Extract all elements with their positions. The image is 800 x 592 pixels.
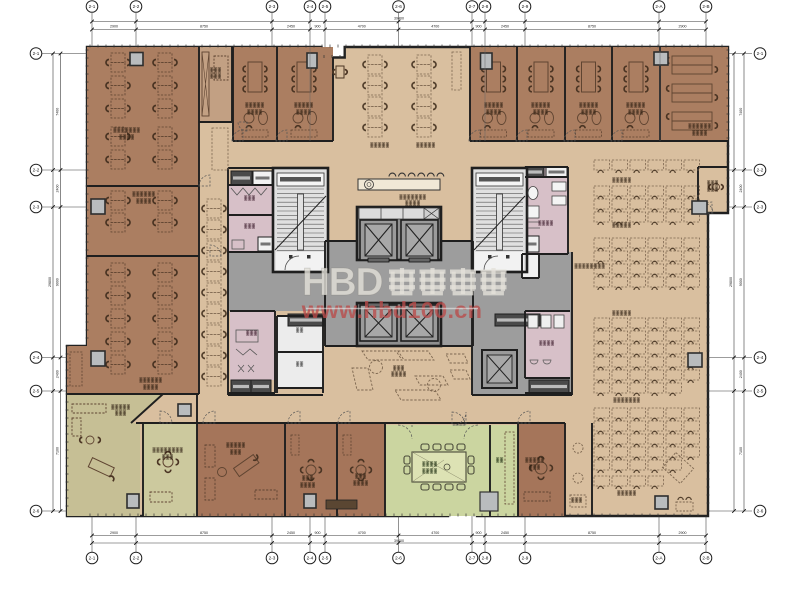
svg-text:2-1: 2-1 xyxy=(33,51,40,56)
svg-text:2-A: 2-A xyxy=(655,4,663,9)
svg-text:29800: 29800 xyxy=(729,277,733,287)
svg-text:2-2: 2-2 xyxy=(133,4,140,9)
svg-text:9000: 9000 xyxy=(56,278,60,286)
svg-text:2400: 2400 xyxy=(56,185,60,193)
svg-text:2-1: 2-1 xyxy=(757,51,764,56)
svg-text:9000: 9000 xyxy=(739,278,743,286)
svg-text:2400: 2400 xyxy=(56,370,60,378)
svg-text:2-4: 2-4 xyxy=(33,355,40,360)
svg-text:2-B: 2-B xyxy=(702,4,709,9)
svg-text:8750: 8750 xyxy=(200,531,208,535)
svg-text:2-3: 2-3 xyxy=(33,205,40,210)
svg-text:2900: 2900 xyxy=(110,25,118,29)
svg-text:8750: 8750 xyxy=(200,25,208,29)
svg-text:4700: 4700 xyxy=(358,531,366,535)
svg-text:2-B: 2-B xyxy=(702,556,709,561)
svg-text:www.hbd100.cn: www.hbd100.cn xyxy=(301,297,483,323)
svg-text:2450: 2450 xyxy=(287,531,295,535)
svg-text:2-4: 2-4 xyxy=(307,556,314,561)
svg-text:900: 900 xyxy=(476,531,482,535)
svg-text:900: 900 xyxy=(315,25,321,29)
svg-text:2-1: 2-1 xyxy=(89,4,96,9)
svg-text:2-9: 2-9 xyxy=(522,4,529,9)
svg-text:2900: 2900 xyxy=(110,531,118,535)
svg-text:29800: 29800 xyxy=(48,277,52,287)
svg-text:2400: 2400 xyxy=(739,185,743,193)
svg-text:2-9: 2-9 xyxy=(522,556,529,561)
svg-text:2-5: 2-5 xyxy=(322,556,329,561)
svg-text:39400: 39400 xyxy=(394,17,404,21)
svg-text:2450: 2450 xyxy=(287,25,295,29)
svg-text:2-5: 2-5 xyxy=(33,389,40,394)
svg-text:7400: 7400 xyxy=(739,108,743,116)
svg-text:2-2: 2-2 xyxy=(133,556,140,561)
svg-text:2-2: 2-2 xyxy=(757,168,764,173)
svg-text:2-3: 2-3 xyxy=(757,205,764,210)
svg-text:4700: 4700 xyxy=(431,25,439,29)
svg-text:7100: 7100 xyxy=(739,447,743,455)
svg-text:900: 900 xyxy=(315,531,321,535)
svg-text:2-A: 2-A xyxy=(655,556,663,561)
svg-text:2-7: 2-7 xyxy=(469,4,476,9)
svg-text:2-6: 2-6 xyxy=(395,556,402,561)
svg-text:2900: 2900 xyxy=(679,531,687,535)
svg-text:2-1: 2-1 xyxy=(89,556,96,561)
svg-text:2-3: 2-3 xyxy=(269,556,276,561)
svg-text:2-6: 2-6 xyxy=(33,509,40,514)
svg-text:7400: 7400 xyxy=(56,108,60,116)
svg-text:2-6: 2-6 xyxy=(395,4,402,9)
svg-text:8750: 8750 xyxy=(588,531,596,535)
svg-text:2-6: 2-6 xyxy=(757,509,764,514)
svg-text:2-2: 2-2 xyxy=(33,168,40,173)
svg-text:2-8: 2-8 xyxy=(482,4,489,9)
svg-text:8750: 8750 xyxy=(588,25,596,29)
svg-text:2-4: 2-4 xyxy=(757,355,764,360)
svg-text:2900: 2900 xyxy=(679,25,687,29)
svg-text:2450: 2450 xyxy=(501,531,509,535)
svg-text:2-4: 2-4 xyxy=(307,4,314,9)
svg-text:4700: 4700 xyxy=(358,25,366,29)
svg-text:7100: 7100 xyxy=(56,447,60,455)
svg-text:2400: 2400 xyxy=(739,370,743,378)
svg-text:2450: 2450 xyxy=(501,25,509,29)
svg-text:2-3: 2-3 xyxy=(269,4,276,9)
svg-text:2-5: 2-5 xyxy=(322,4,329,9)
svg-text:4700: 4700 xyxy=(431,531,439,535)
svg-text:2-5: 2-5 xyxy=(757,389,764,394)
svg-text:39400: 39400 xyxy=(394,539,404,543)
svg-text:900: 900 xyxy=(476,25,482,29)
svg-text:2-7: 2-7 xyxy=(469,556,476,561)
svg-text:2-8: 2-8 xyxy=(482,556,489,561)
